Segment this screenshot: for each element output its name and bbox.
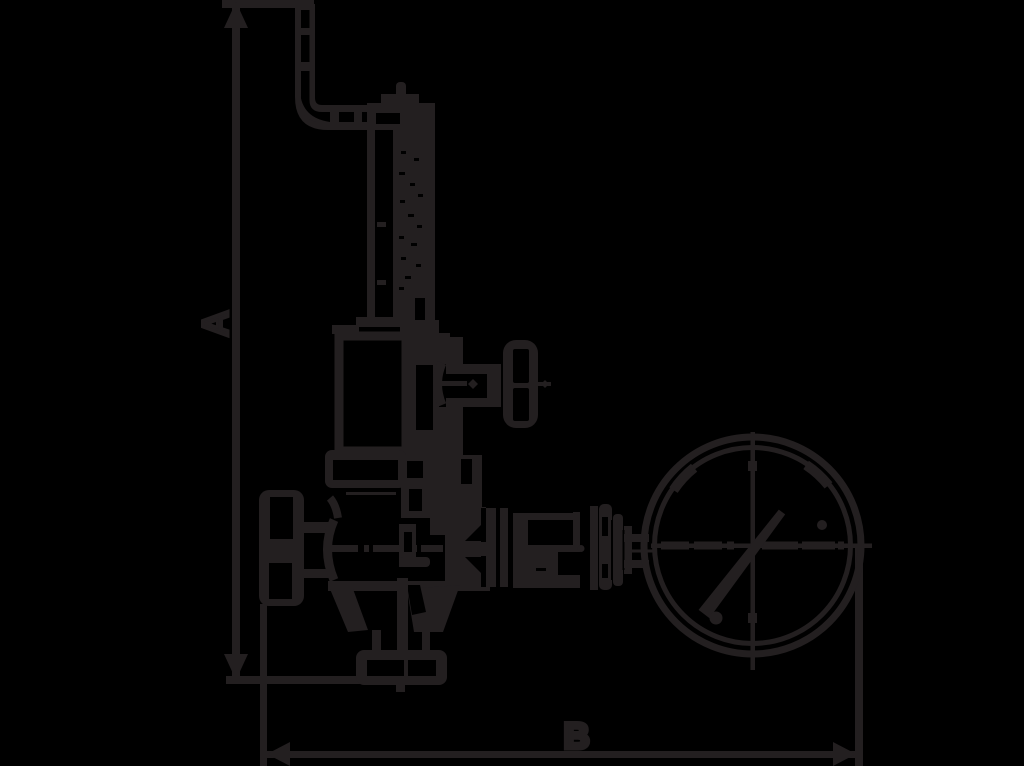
svg-text:B: B [564, 717, 589, 756]
svg-text:A: A [195, 310, 236, 337]
